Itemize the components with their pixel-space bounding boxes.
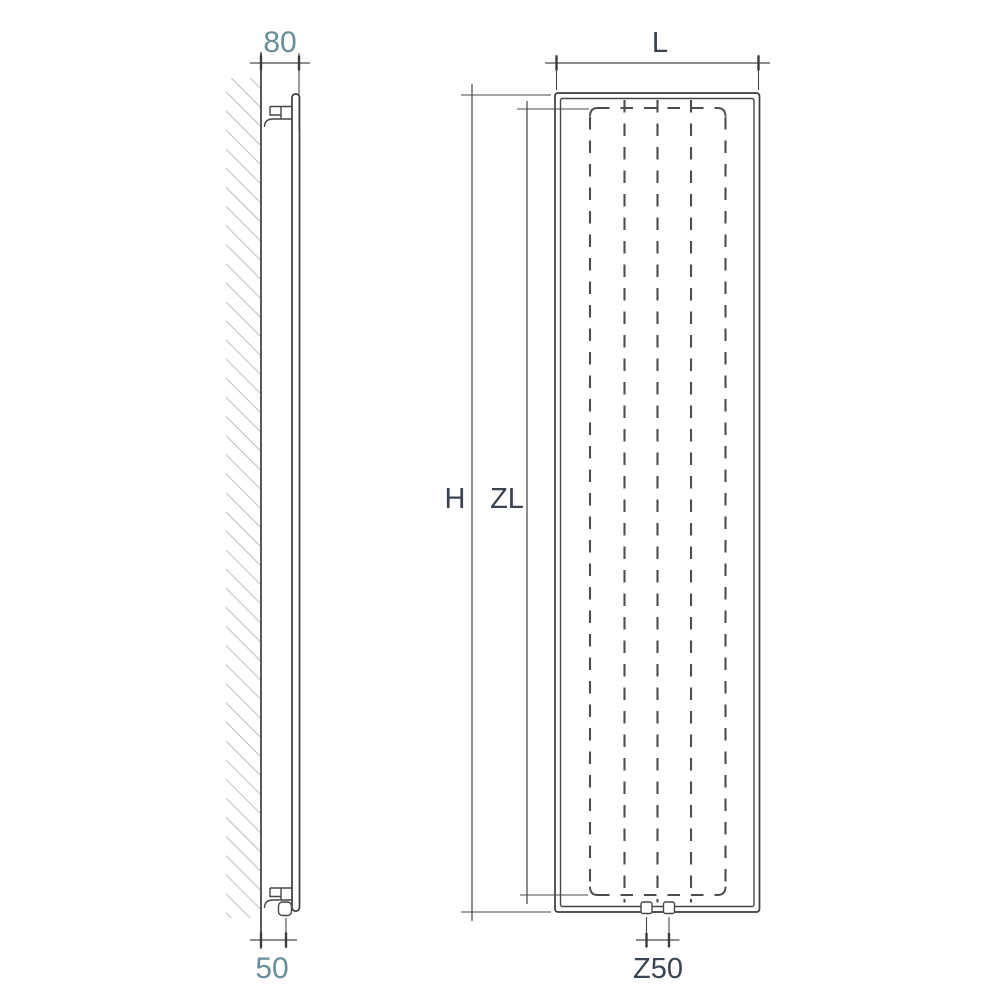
top-bracket [265, 107, 293, 128]
front-connection-stub-right [664, 902, 675, 914]
dimension-L: L [545, 27, 770, 90]
radiator-technical-drawing: 80 50 [0, 0, 1000, 1000]
side-connection-stub [279, 902, 292, 916]
front-view: L H ZL Z50 [445, 27, 770, 985]
wall-hatch [226, 78, 261, 918]
front-connection-stub-left [641, 902, 652, 914]
radiator-side-panel [292, 94, 300, 911]
dim-H-label: H [445, 483, 466, 515]
dim-Z50-label: Z50 [633, 953, 683, 985]
dim-50-label: 50 [255, 952, 288, 985]
dimension-50: 50 [250, 918, 297, 985]
dimension-Z50: Z50 [633, 917, 683, 985]
side-view: 80 50 [226, 26, 310, 985]
top-bracket-hook [265, 119, 293, 127]
dim-ZL-label: ZL [490, 483, 524, 515]
dim-80-label: 80 [263, 26, 296, 59]
dim-L-label: L [652, 27, 668, 59]
